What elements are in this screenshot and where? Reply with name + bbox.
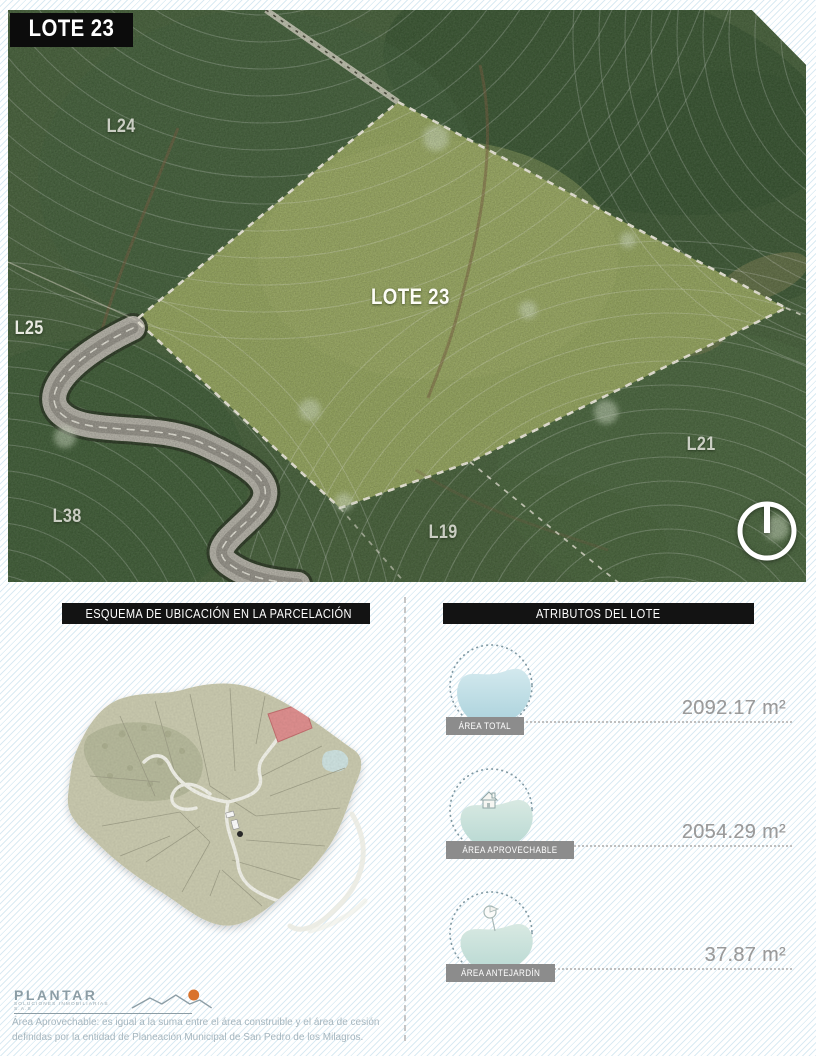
parcelacion-scheme-map (60, 676, 380, 942)
area-antejardin-value: 37.87 m² (705, 944, 786, 967)
lot-23-label: LOTE 23 (364, 284, 457, 310)
attribute-area-antejardin: 37.87 m² ÁREA ANTEJARDÍN (440, 890, 802, 1008)
mountain-sun-icon (130, 988, 214, 1012)
logo-wordmark: PLANTAR (14, 989, 128, 1001)
attributes-section-header: ATRIBUTOS DEL LOTE (443, 603, 754, 624)
area-aprovechable-value: 2054.29 m² (682, 821, 786, 844)
neighbor-lot-label-l19: L19 (426, 522, 460, 544)
area-aprovechable-label: ÁREA APROVECHABLE (446, 841, 574, 859)
neighbor-lot-label-l38: L38 (50, 506, 84, 528)
plantar-logo: PLANTAR SOLUCIONES INMOBILIARIAS S.A.S (14, 988, 214, 1014)
attribute-area-aprovechable: 2054.29 m² ÁREA APROVECHABLE (440, 767, 802, 885)
neighbor-lot-label-l25: L25 (12, 318, 46, 340)
page-title: LOTE 23 (10, 13, 133, 47)
column-separator (404, 597, 406, 1041)
area-total-value: 2092.17 m² (682, 697, 786, 720)
logo-subtext: SOLUCIONES INMOBILIARIAS S.A.S (14, 1002, 128, 1012)
logo-underline (14, 1013, 192, 1014)
neighbor-lot-label-l24: L24 (104, 116, 138, 138)
attribute-area-total: 2092.17 m² ÁREA TOTAL (440, 643, 802, 761)
neighbor-lot-label-l21: L21 (684, 434, 718, 456)
location-section-header: ESQUEMA DE UBICACIÓN EN LA PARCELACIÓN (62, 603, 370, 624)
disclaimer-text: Área Aprovechable: es igual a la suma en… (12, 1016, 410, 1045)
area-total-label: ÁREA TOTAL (446, 717, 524, 735)
area-antejardin-label: ÁREA ANTEJARDÍN (446, 964, 555, 982)
leader-line (498, 721, 792, 723)
lot-sheet-page: LOTE 23 L24 L25 L38 L19 L21 LOTE 23 ESQU… (0, 0, 816, 1056)
north-compass-icon (732, 496, 802, 566)
